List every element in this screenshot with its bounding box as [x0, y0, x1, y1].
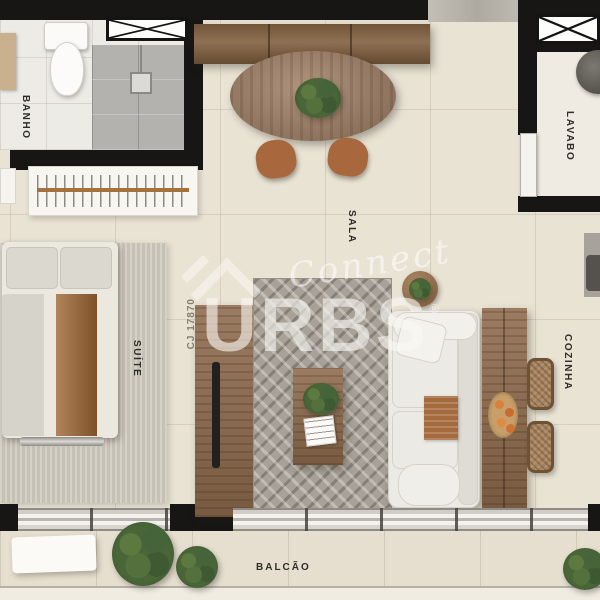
- wall-balcony-left: [0, 504, 18, 531]
- kitchen-counter-top: [428, 0, 518, 22]
- bar-stool: [527, 358, 554, 410]
- room-label-balcao: BALCÃO: [256, 562, 311, 573]
- shaft-x-icon: [106, 17, 188, 41]
- room-label-lavabo: LAVABO: [564, 111, 575, 161]
- toilet-bowl: [50, 42, 84, 96]
- plant-balcony: [563, 548, 600, 590]
- closet-rack: [28, 166, 198, 216]
- sofa-arm-cushion: [398, 464, 460, 506]
- bed: [2, 242, 118, 438]
- bed-pillow: [60, 247, 112, 289]
- tv: [212, 362, 220, 468]
- fruits: [495, 400, 504, 409]
- wall-lavabo-left: [518, 20, 537, 135]
- cooktop: [586, 255, 600, 291]
- room-label-sala: SALA: [346, 210, 357, 244]
- roof-icon: [182, 250, 260, 304]
- closet-rod: [37, 188, 189, 192]
- dining-chair: [326, 135, 371, 178]
- plant-balcony: [112, 522, 174, 586]
- sofa-backrest: [458, 313, 478, 505]
- fruit-tray: [488, 392, 518, 438]
- bed-throw: [56, 294, 97, 436]
- bed-bench: [20, 437, 104, 446]
- wall-lavabo-bottom: [518, 196, 600, 212]
- bar-stool: [527, 421, 554, 473]
- wall-balcony-right: [588, 504, 600, 531]
- shelf: [0, 168, 16, 204]
- dining-chair: [254, 137, 299, 180]
- magazine: [303, 415, 336, 446]
- plant-balcony: [176, 546, 218, 588]
- plant-coffee-table: [303, 383, 339, 415]
- door-leaf: [520, 133, 537, 197]
- plant-centerpiece: [295, 78, 341, 118]
- plant-side-table: [409, 278, 431, 300]
- floor-plan: BANHO LAVABO SALA SUÍTE COZINHA BALCÃO C…: [0, 0, 600, 600]
- shower-hose: [140, 45, 142, 75]
- tv-panel: [195, 305, 253, 517]
- balcony-bench: [11, 535, 96, 574]
- bed-pillow: [6, 247, 58, 289]
- room-label-suite: SUÍTE: [131, 340, 142, 377]
- door-seams: [233, 508, 588, 531]
- sliding-door: [233, 508, 588, 531]
- sofa-throw: [424, 396, 458, 440]
- kitchen-counter-right: [584, 233, 600, 297]
- shower: [92, 45, 184, 150]
- shaft-x-icon: [536, 14, 600, 44]
- banho-counter: [0, 33, 16, 90]
- shower-drain: [130, 72, 152, 94]
- room-label-banho: BANHO: [20, 95, 31, 140]
- room-label-cozinha: COZINHA: [562, 334, 573, 391]
- kitchen-island: [482, 308, 527, 513]
- bed-duvet-fold: [2, 294, 44, 436]
- balcony-railing: [0, 586, 600, 600]
